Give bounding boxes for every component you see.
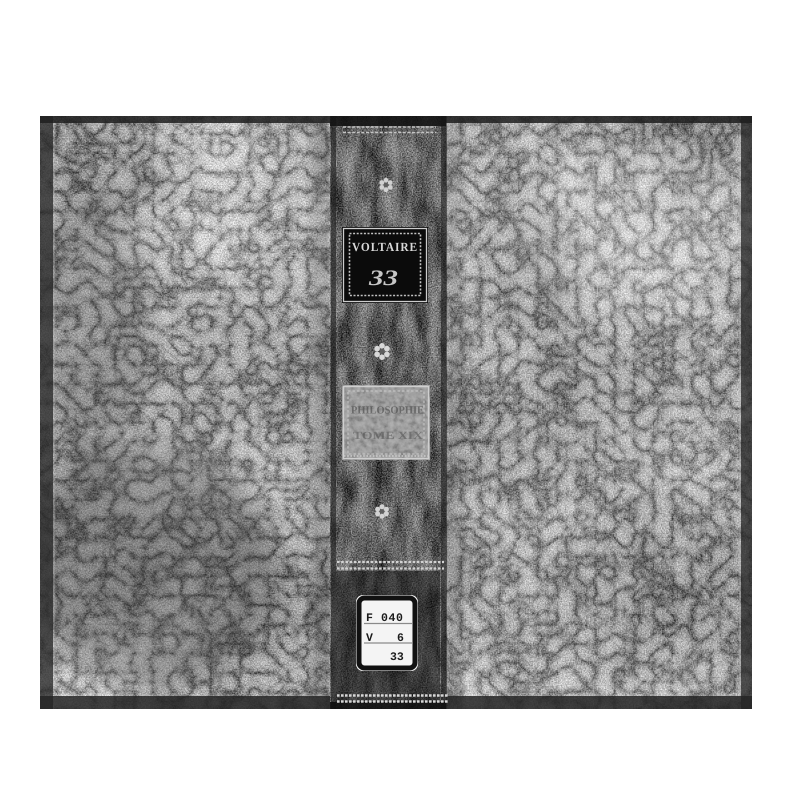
svg-text:F 040: F 040 — [366, 612, 404, 625]
svg-text:TOME XIX: TOME XIX — [353, 430, 423, 442]
svg-text:VOLTAIRE: VOLTAIRE — [352, 240, 418, 254]
svg-text:6: 6 — [397, 632, 404, 645]
svg-text:PHILOSOPHIE: PHILOSOPHIE — [351, 405, 424, 417]
svg-text:V: V — [366, 632, 373, 645]
svg-text:33: 33 — [390, 651, 404, 664]
svg-text:33: 33 — [368, 265, 398, 290]
